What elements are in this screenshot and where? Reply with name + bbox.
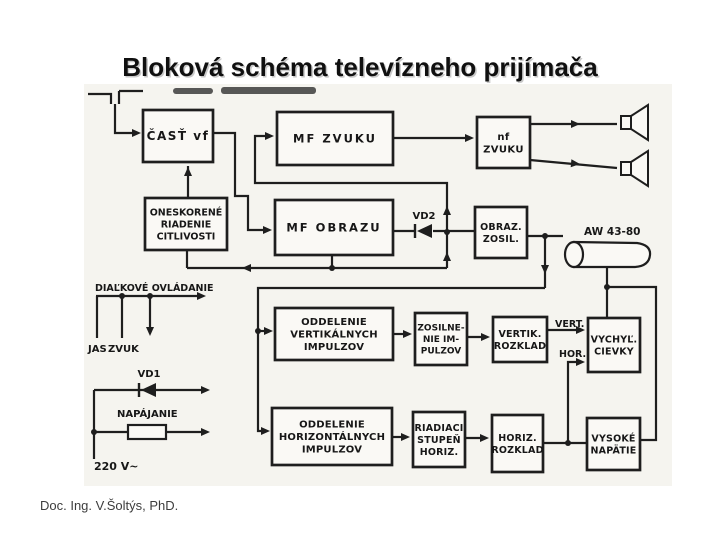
block-vysoke-napatie: VYSOKÉNAPÄTIE xyxy=(587,418,640,470)
block-obraz-zosil: OBRAZ.ZOSIL. xyxy=(475,207,527,258)
label-aw-43-80: AW 43-80 xyxy=(584,226,640,238)
block-oddelenie-horizontalnych: ODDELENIEHORIZONTÁLNYCHIMPULZOV xyxy=(272,408,392,465)
junction-dot xyxy=(542,233,548,239)
block-zosilnenie-impulzov: ZOSILNE-NIE IM-PULZOV xyxy=(415,313,467,365)
picture-tube-icon xyxy=(565,242,650,267)
label-napajanie: NAPÁJANIE xyxy=(117,407,178,420)
label-vert: VERT. xyxy=(555,319,584,330)
label-vd2: VD2 xyxy=(413,211,436,222)
scan-smudge xyxy=(221,87,316,94)
block-cast-vf: ČASŤ vf xyxy=(143,110,213,162)
label-hor: HOR. xyxy=(559,349,586,360)
block-vychyl-cievky-label: VYCHYĽ.CIEVKY xyxy=(591,334,638,357)
block-vertik-rozklad: VERTIK.ROZKLAD xyxy=(493,317,547,362)
block-mf-zvuku: MF ZVUKU xyxy=(277,112,393,165)
block-zosilnenie-impulzov-label: ZOSILNE-NIE IM-PULZOV xyxy=(417,324,464,357)
label-220v: 220 V~ xyxy=(94,460,139,473)
junction-dot xyxy=(91,429,97,435)
slide: Bloková schéma televízneho prijímača ČAS… xyxy=(0,0,720,540)
label-dialkove-ovladanie: DIAĽKOVÉ OVLÁDANIE xyxy=(95,282,214,294)
label-jas: JAS xyxy=(87,344,107,355)
junction-dot xyxy=(329,265,335,271)
block-vysoke-napatie-label: VYSOKÉNAPÄTIE xyxy=(591,432,637,456)
junction-dot xyxy=(444,229,450,235)
block-riadiaci-stupen-horiz: RIADIACISTUPEŇHORIZ. xyxy=(413,412,465,467)
block-riadiaci-stupen-horiz-label: RIADIACISTUPEŇHORIZ. xyxy=(414,423,463,458)
scan-smudge xyxy=(173,88,213,94)
junction-dot xyxy=(565,440,571,446)
block-cast-vf-label: ČASŤ vf xyxy=(147,128,210,143)
block-nf-zvuku: nfZVUKU xyxy=(477,117,530,168)
block-mf-obrazu-label: MF OBRAZU xyxy=(286,221,381,235)
block-vychyl-cievky: VYCHYĽ.CIEVKY xyxy=(588,318,640,372)
block-vertik-rozklad-label: VERTIK.ROZKLAD xyxy=(494,329,546,352)
block-horiz-rozklad-label: HORIZ.ROZKLAD xyxy=(491,433,543,456)
junction-dot xyxy=(255,328,261,334)
block-horiz-rozklad: HORIZ.ROZKLAD xyxy=(491,415,543,472)
label-vd1: VD1 xyxy=(138,369,161,380)
resistor-icon xyxy=(128,425,166,439)
junction-dot xyxy=(604,284,610,290)
label-zvuk: ZVUK xyxy=(108,344,140,355)
block-mf-obrazu: MF OBRAZU xyxy=(275,200,393,255)
block-oddelenie-vertikalnych: ODDELENIEVERTIKÁLNYCHIMPULZOV xyxy=(275,308,393,360)
block-diagram: ČASŤ vfMF ZVUKUnfZVUKUONESKORENÉRIADENIE… xyxy=(0,0,720,540)
block-oneskorene-riadenie-citlivosti: ONESKORENÉRIADENIECITLIVOSTI xyxy=(145,198,227,250)
block-obraz-zosil-label: OBRAZ.ZOSIL. xyxy=(480,222,522,245)
author-credit: Doc. Ing. V.Šoltýs, PhD. xyxy=(40,498,178,513)
block-mf-zvuku-label: MF ZVUKU xyxy=(293,132,377,146)
